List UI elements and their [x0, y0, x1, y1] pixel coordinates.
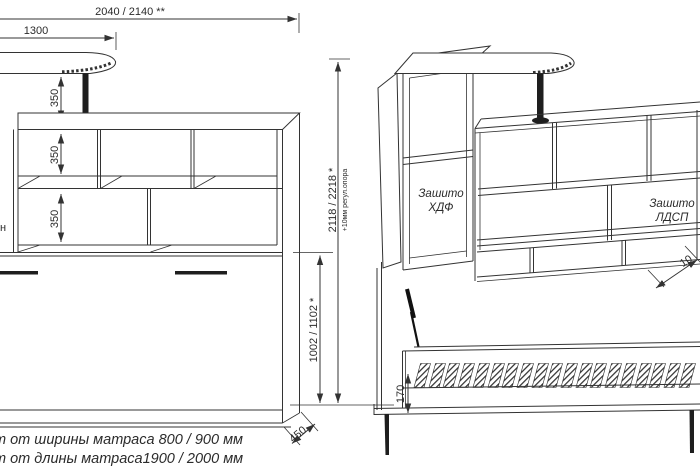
label-ldsp-line1: Зашито — [649, 198, 695, 210]
left-view-drawing: 2040 / 2140 ** 1300 350 350 350 — [0, 6, 318, 445]
table-top-right — [395, 53, 574, 124]
bed-open — [374, 262, 700, 455]
bed-slats — [414, 364, 696, 388]
table-leg-right — [537, 74, 544, 119]
dimension-shelf-350-3: 350 — [49, 194, 61, 242]
bed-leg-left — [385, 414, 390, 455]
handle-right — [175, 271, 227, 275]
handle-left — [0, 271, 38, 275]
dim-350-2-label: 350 — [49, 146, 61, 164]
bed-cabinet-left-view — [0, 253, 300, 428]
dimension-partial-10: 10 — [648, 246, 700, 288]
drawing-canvas: 2040 / 2140 ** 1300 350 350 350 — [0, 0, 700, 470]
door-open-panel — [378, 73, 401, 268]
label-ldsp-line2: ЛДСП — [655, 212, 689, 224]
label-hdf-line2: ХДФ — [428, 202, 454, 214]
dim-height-note-label: +10мм регул.опора — [342, 169, 349, 232]
dim-10-label: 10 — [678, 253, 695, 270]
footnote-1: т от ширины матраса 800 / 900 мм — [0, 432, 243, 448]
dim-total-width-label: 2040 / 2140 ** — [95, 6, 165, 18]
dim-bed-height-label: 1002 / 1102 * — [308, 297, 320, 362]
dim-350-1-label: 350 — [49, 89, 61, 107]
dim-total-height-label: 2118 / 2218 * — [327, 167, 339, 232]
text-fragment: н — [0, 222, 6, 234]
dimension-frame-170: 170 — [395, 374, 408, 413]
dim-table-width-label: 1300 — [24, 25, 48, 37]
dim-170-label: 170 — [395, 385, 407, 403]
technical-drawing-page: 2040 / 2140 ** 1300 350 350 350 — [0, 0, 700, 470]
gas-strut — [407, 289, 419, 347]
tall-cabinet: Зашито ХДФ — [403, 46, 490, 270]
label-ldsp: Зашито ЛДСП — [649, 198, 695, 224]
dim-350-3-label: 350 — [49, 210, 61, 228]
right-view-drawing: Зашито ХДФ — [374, 46, 700, 455]
footnotes: т от ширины матраса 800 / 900 мм т от дл… — [0, 432, 243, 467]
footnote-2: т от длины матраса1900 / 2000 мм — [0, 451, 243, 467]
dimension-shelf-350-2: 350 — [49, 134, 61, 174]
table-top — [0, 53, 116, 74]
dimension-depth-450: 450 — [284, 412, 318, 445]
dimension-table-width: 1300 — [0, 25, 116, 50]
bed-leg-right — [690, 410, 695, 453]
label-hdf: Зашито ХДФ — [418, 188, 464, 214]
label-hdf-line1: Зашито — [418, 188, 464, 200]
shelf-unit-right-view: Зашито ЛДСП — [475, 102, 700, 282]
